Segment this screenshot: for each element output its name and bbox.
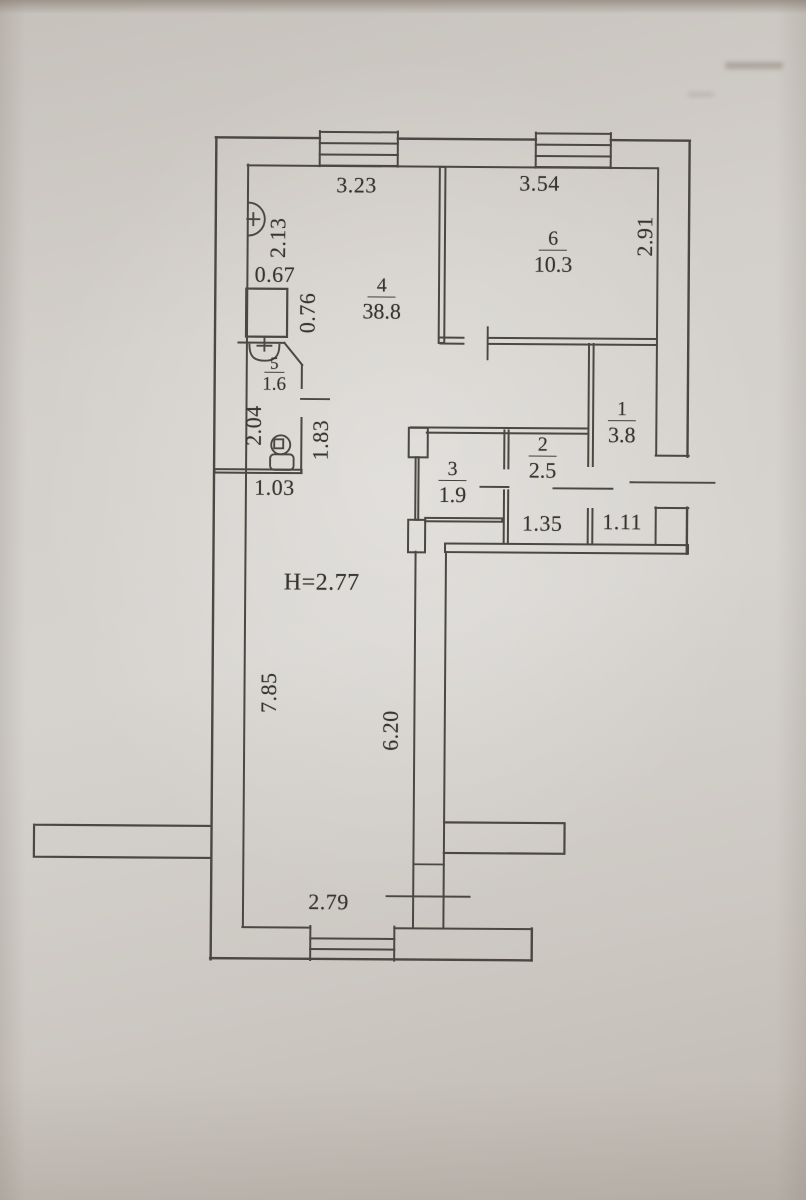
- floor-plan-drawing: [0, 0, 806, 1202]
- room-area: 1.6: [262, 373, 286, 396]
- stub-right: [444, 822, 565, 853]
- floor-plan-photo: 4 38.8 6 10.3 1 3.8 2 2.5 3 1.9 5 1.6 3.…: [0, 0, 806, 1200]
- vent-shaft: [246, 289, 287, 337]
- ceiling-height-note: H=2.77: [284, 569, 360, 597]
- wall-bath-chamfer: [284, 343, 302, 365]
- room-label-4: 4 38.8: [362, 275, 401, 324]
- room-number: 2: [529, 435, 557, 457]
- dim-top-right: 3.54: [519, 170, 560, 196]
- room-area: 2.5: [529, 457, 557, 483]
- dim-left-lower: 7.85: [256, 672, 282, 713]
- room-label-1: 1 3.8: [608, 399, 636, 447]
- dim-niche-height: 0.76: [295, 293, 321, 334]
- wall-room3-bottom: [425, 518, 502, 522]
- kitchen-sink-icon: [247, 203, 265, 236]
- room-label-5: 5 1.6: [262, 355, 286, 396]
- room-number: 6: [539, 229, 567, 251]
- wall-hallway-bottom: [445, 543, 688, 553]
- dim-niche-width: 0.67: [255, 262, 296, 288]
- interior-partitions: [405, 167, 690, 930]
- dim-entry-width: 1.11: [602, 509, 642, 535]
- room-area: 38.8: [362, 297, 401, 324]
- door-line-entrance: [630, 482, 714, 483]
- dim-bath-right: 1.83: [308, 420, 334, 461]
- room-label-3: 3 1.9: [438, 459, 466, 507]
- wall-hallway-top: [411, 427, 588, 433]
- room-area: 3.8: [608, 421, 636, 447]
- building-stubs: [34, 820, 565, 861]
- room-number: 1: [608, 399, 636, 421]
- wall-room1-left: [588, 344, 594, 544]
- wall-lower-room-right: [413, 552, 446, 928]
- toilet-icon: [270, 435, 294, 470]
- dim-top-left: 3.23: [336, 172, 377, 198]
- dim-bath-height: 2.04: [241, 405, 267, 446]
- room-number: 5: [264, 355, 285, 373]
- room-label-2: 2 2.5: [528, 435, 556, 483]
- room-label-6: 6 10.3: [534, 229, 573, 278]
- dim-hall-width: 1.35: [522, 511, 563, 537]
- room-area: 10.3: [534, 251, 573, 278]
- wall-room3-left: [415, 457, 418, 520]
- window-room4: [320, 131, 398, 167]
- inner-walls: [242, 165, 690, 931]
- wall-pier-top: [409, 428, 428, 458]
- room-number: 3: [438, 459, 466, 481]
- wall-pier-bottom: [408, 520, 425, 553]
- wall-bath-right: [301, 365, 302, 471]
- floor-plan: 4 38.8 6 10.3 1 3.8 2 2.5 3 1.9 5 1.6 3.…: [0, 0, 806, 1202]
- wall-room6-bottom: [440, 338, 656, 340]
- wall-room4-room6: [439, 167, 446, 343]
- dim-bottom-width: 2.79: [308, 889, 349, 915]
- dim-right-side: 2.91: [632, 216, 658, 257]
- door-marks: [298, 326, 716, 898]
- room-area: 1.9: [439, 481, 467, 507]
- dim-left-upper: 2.13: [265, 217, 291, 258]
- door-line-lower-room: [387, 896, 470, 897]
- dim-bath-width: 1.03: [254, 475, 295, 501]
- dim-mid-wall: 6.20: [378, 710, 404, 751]
- window-room6: [536, 133, 611, 169]
- room-number: 4: [368, 275, 396, 297]
- stub-left: [34, 825, 211, 858]
- window-bottom: [310, 926, 394, 961]
